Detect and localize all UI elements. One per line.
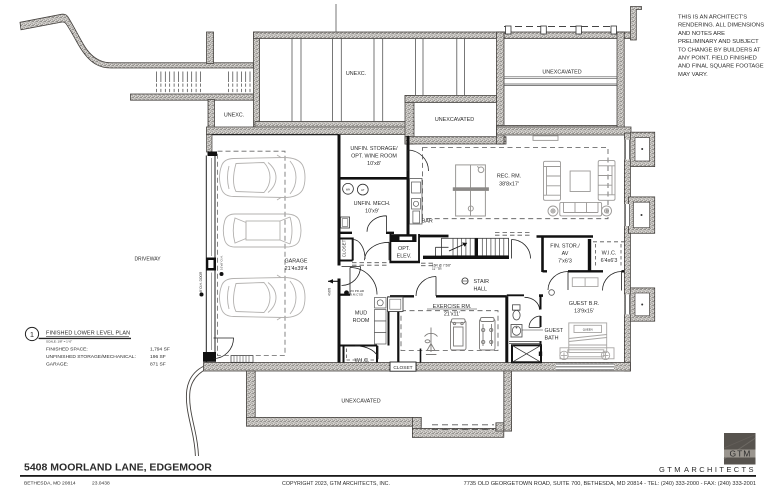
svg-text:UNEXCAVATED: UNEXCAVATED (542, 70, 581, 76)
svg-text:9'x8' O.H. DOOR: 9'x8' O.H. DOOR (199, 271, 203, 296)
svg-text:FIN. STOR./: FIN. STOR./ (550, 244, 580, 250)
svg-text:16'x8' O.H.: 16'x8' O.H. (220, 255, 224, 270)
svg-text:21'4x39'4: 21'4x39'4 (285, 266, 308, 272)
svg-text:10'x8': 10'x8' (367, 161, 381, 167)
svg-text:1,794 SF: 1,794 SF (150, 347, 170, 353)
svg-text:THIS IS AN ARCHITECT'S: THIS IS AN ARCHITECT'S (678, 15, 747, 21)
svg-text:BAR: BAR (422, 219, 433, 225)
svg-text:PRELIMINARY AND SUBJECT: PRELIMINARY AND SUBJECT (678, 39, 759, 45)
svg-text:AND NOTES ARE: AND NOTES ARE (678, 31, 725, 37)
svg-text:SCALE: 1/8" = 1'-0": SCALE: 1/8" = 1'-0" (46, 340, 72, 344)
svg-text:MUD: MUD (355, 311, 367, 317)
svg-text:HT: HT (361, 188, 365, 192)
svg-text:11" TR: 11" TR (432, 267, 442, 271)
svg-text:38'8x17': 38'8x17' (499, 182, 519, 188)
svg-text:RENDERING. ALL DIMENSIONS: RENDERING. ALL DIMENSIONS (678, 23, 764, 29)
svg-text:OPT.: OPT. (398, 246, 410, 252)
svg-text:23.0438: 23.0438 (92, 481, 110, 487)
svg-text:UNEXCAVATED: UNEXCAVATED (341, 399, 380, 405)
svg-text:13'9x15': 13'9x15' (574, 309, 594, 315)
svg-text:MAY VARY.: MAY VARY. (678, 72, 708, 78)
svg-text:BETHESDA, MD 20814: BETHESDA, MD 20814 (24, 481, 76, 487)
svg-text:UNEXC.: UNEXC. (346, 71, 366, 77)
svg-text:B.M.C'SD: B.M.C'SD (350, 293, 364, 297)
svg-text:UNEXC.: UNEXC. (224, 113, 244, 119)
svg-text:7735 OLD GEORGETOWN ROAD, SUIT: 7735 OLD GEORGETOWN ROAD, SUITE 700, BET… (464, 481, 756, 487)
svg-text:GARAGE: GARAGE (284, 259, 307, 265)
svg-text:OPT. WINE ROOM: OPT. WINE ROOM (351, 154, 397, 160)
svg-text:1: 1 (30, 330, 34, 339)
svg-text:WH: WH (346, 187, 350, 191)
svg-text:W.I.C.: W.I.C. (602, 251, 617, 257)
svg-text:UNFINISHED STORAGE/MECHANICAL:: UNFINISHED STORAGE/MECHANICAL: (46, 354, 136, 360)
svg-text:5408 MOORLAND LANE, EDGEMOOR: 5408 MOORLAND LANE, EDGEMOOR (24, 462, 212, 474)
svg-text:871 SF: 871 SF (150, 362, 166, 368)
svg-text:AV: AV (562, 251, 569, 257)
svg-text:21'x11': 21'x11' (444, 312, 460, 318)
svg-text:196 SF: 196 SF (150, 354, 166, 360)
svg-text:REC. RM.: REC. RM. (497, 174, 521, 180)
svg-text:QUEEN: QUEEN (583, 328, 593, 332)
svg-text:CLOSET: CLOSET (342, 239, 347, 257)
svg-text:GUEST: GUEST (545, 328, 564, 334)
svg-text:10'x9': 10'x9' (365, 209, 379, 215)
svg-text:6'4x6'3: 6'4x6'3 (601, 258, 618, 264)
svg-text:ROOM: ROOM (353, 318, 370, 324)
svg-text:ANY POINT. FIELD FINISHED: ANY POINT. FIELD FINISHED (678, 56, 757, 62)
svg-text:7'x6'3: 7'x6'3 (558, 259, 572, 265)
svg-text:CLOSET: CLOSET (393, 365, 412, 371)
svg-text:UNFIN. MECH.: UNFIN. MECH. (354, 201, 391, 207)
svg-text:4'x6'8: 4'x6'8 (328, 288, 332, 296)
svg-text:W.I.C.: W.I.C. (355, 358, 370, 364)
svg-text:DRIVEWAY: DRIVEWAY (134, 257, 161, 263)
svg-text:GUEST B.R.: GUEST B.R. (569, 301, 599, 307)
svg-text:UNEXCAVATED: UNEXCAVATED (435, 117, 474, 123)
svg-text:FINISHED LOWER LEVEL PLAN: FINISHED LOWER LEVEL PLAN (46, 331, 130, 337)
svg-text:FINISHED SPACE:: FINISHED SPACE: (46, 347, 88, 353)
svg-text:STAIR: STAIR (474, 279, 490, 285)
svg-text:HALL: HALL (474, 287, 488, 293)
svg-text:ARCHITECTS: ARCHITECTS (684, 465, 756, 474)
svg-text:UNFIN. STORAGE/: UNFIN. STORAGE/ (350, 146, 398, 152)
svg-text:COPYRIGHT 2023, GTM ARCHITECTS: COPYRIGHT 2023, GTM ARCHITECTS, INC. (282, 481, 390, 487)
svg-text:ELEV.: ELEV. (397, 254, 412, 260)
svg-text:BATH: BATH (545, 336, 559, 342)
svg-text:AND FINAL SQUARE FOOTAGE: AND FINAL SQUARE FOOTAGE (678, 64, 764, 70)
svg-text:GTM: GTM (659, 465, 683, 474)
svg-text:GARAGE:: GARAGE: (46, 362, 68, 368)
svg-text:TO CHANGE BY BUILDERS AT: TO CHANGE BY BUILDERS AT (678, 47, 761, 53)
svg-text:GTM: GTM (730, 449, 752, 459)
